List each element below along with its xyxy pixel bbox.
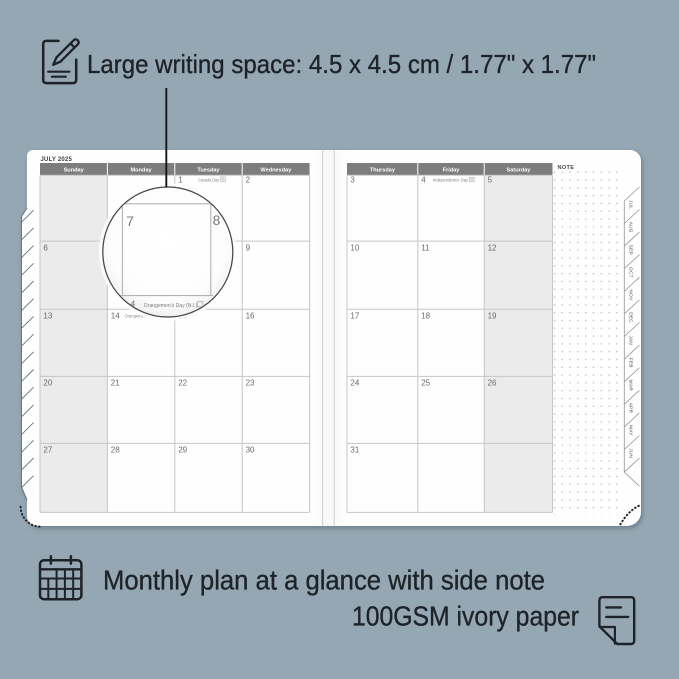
svg-text:23: 23 [246,379,255,388]
svg-text:31: 31 [350,446,359,455]
svg-text:Monthly plan at a glance with: Monthly plan at a glance with side note [103,565,545,596]
svg-text:Saturday: Saturday [506,168,531,174]
svg-text:Wednesday: Wednesday [260,168,292,174]
svg-text:Tuesday: Tuesday [197,168,220,174]
svg-text:DEC: DEC [628,312,633,323]
svg-text:Canada Day: Canada Day [198,177,220,182]
svg-text:14: 14 [111,312,120,321]
svg-text:Large writing space: 4.5 x 4.5: Large writing space: 4.5 x 4.5 cm / 1.77… [87,49,596,79]
svg-text:FEB: FEB [628,358,633,368]
svg-text:16: 16 [246,312,255,321]
svg-text:3: 3 [350,176,355,185]
svg-text:28: 28 [111,446,120,455]
svg-text:17: 17 [350,312,359,321]
svg-text:NOV: NOV [628,289,633,301]
svg-text:24: 24 [350,379,359,388]
svg-text:2: 2 [246,176,251,185]
svg-text:18: 18 [421,312,430,321]
svg-text:AUG: AUG [628,222,633,233]
svg-text:SEP: SEP [628,245,633,255]
svg-text:JAN: JAN [628,335,633,345]
svg-text:22: 22 [178,379,187,388]
svg-text:26: 26 [488,379,497,388]
svg-text:30: 30 [246,446,255,455]
svg-text:27: 27 [43,446,52,455]
svg-text:JULY 2025: JULY 2025 [41,157,73,163]
svg-text:100GSM ivory paper: 100GSM ivory paper [352,601,579,632]
svg-text:29: 29 [178,446,187,455]
svg-text:11: 11 [421,243,430,252]
svg-text:Monday: Monday [131,168,153,174]
svg-text:25: 25 [421,379,430,388]
svg-text:13: 13 [43,312,52,321]
svg-text:APR: APR [628,403,633,414]
svg-text:21: 21 [111,379,120,388]
svg-text:5: 5 [488,176,493,185]
svg-text:7: 7 [126,214,134,229]
svg-text:8: 8 [213,213,221,228]
svg-text:9: 9 [246,243,251,252]
svg-text:4: 4 [421,176,426,185]
svg-text:JUL: JUL [628,200,633,209]
svg-text:MAR: MAR [628,380,633,392]
svg-text:Sunday: Sunday [64,168,85,174]
svg-text:Thursday: Thursday [370,168,396,174]
svg-text:12: 12 [488,243,497,252]
svg-text:6: 6 [43,243,48,252]
svg-text:Independence Day: Independence Day [433,177,469,182]
svg-text:JUN: JUN [628,448,633,458]
svg-text:Orangemen's Day (N.I.): Orangemen's Day (N.I.) [144,303,198,309]
svg-text:NOTE: NOTE [558,165,575,171]
svg-text:MAY: MAY [628,425,633,436]
svg-text:19: 19 [488,312,497,321]
svg-text:1: 1 [178,176,183,185]
svg-text:Friday: Friday [443,168,461,174]
svg-text:OCT: OCT [628,267,633,278]
svg-text:20: 20 [43,379,52,388]
svg-text:10: 10 [350,243,359,252]
